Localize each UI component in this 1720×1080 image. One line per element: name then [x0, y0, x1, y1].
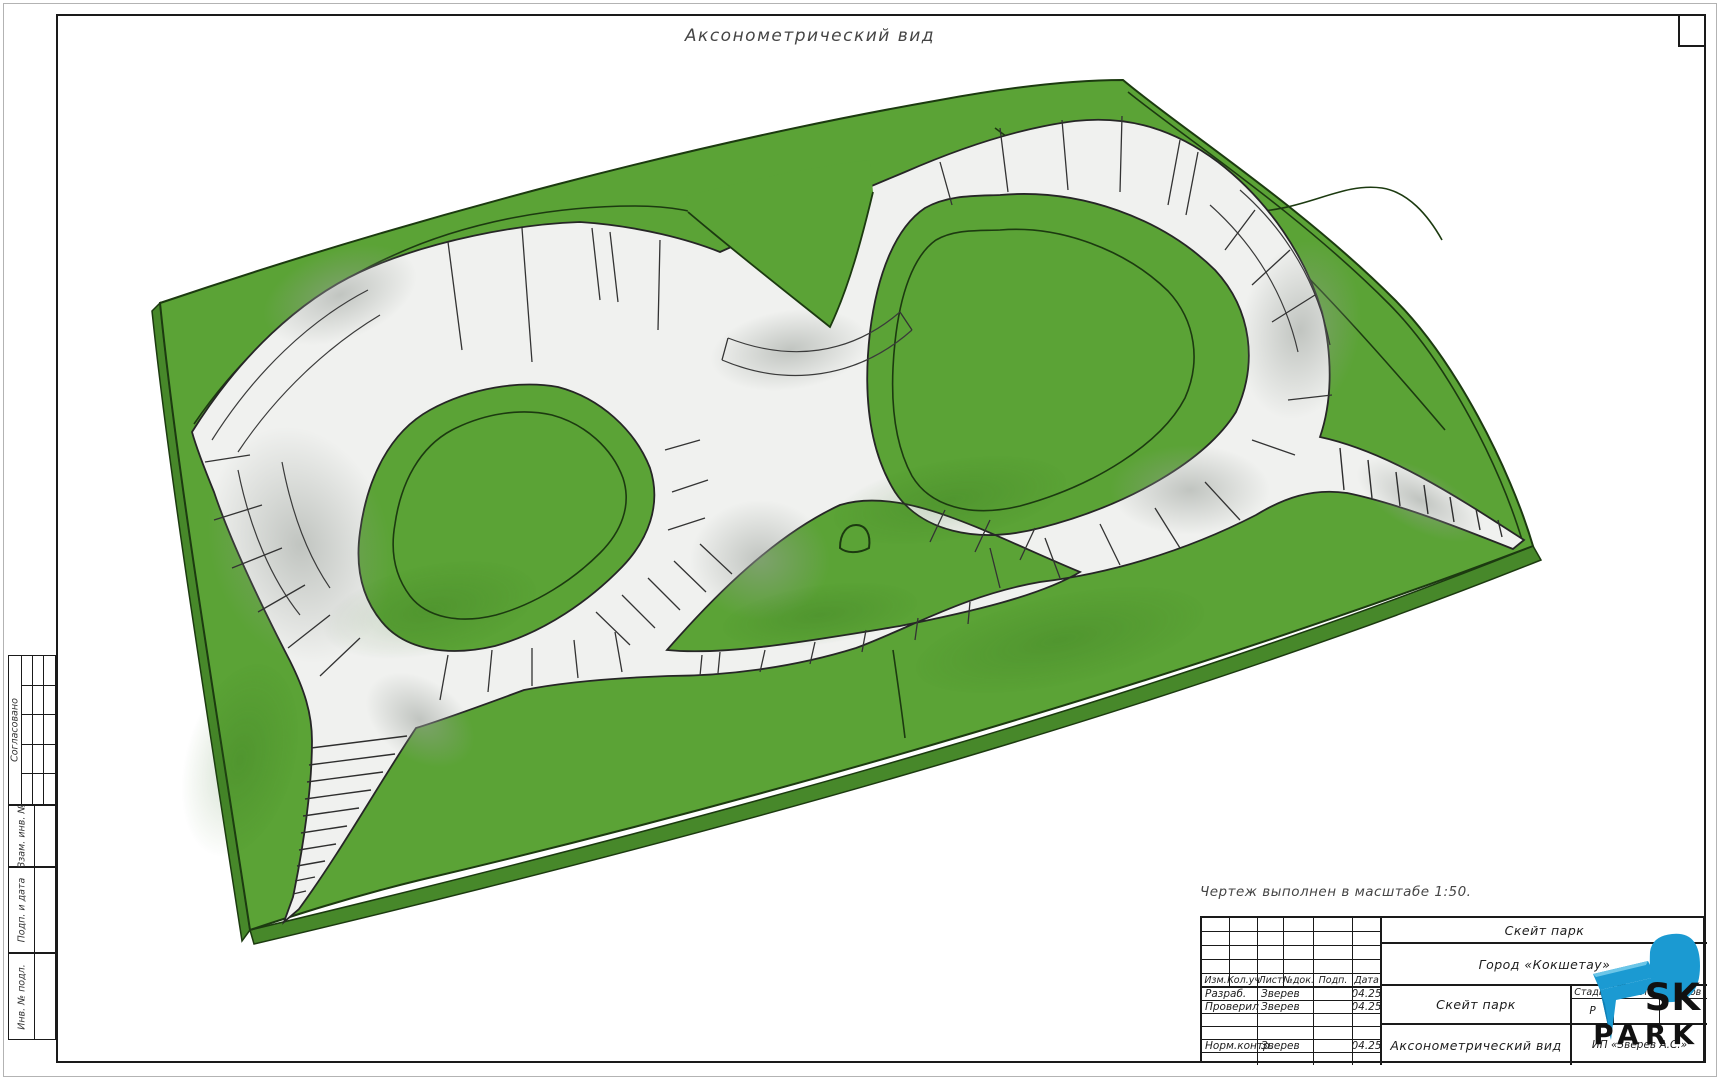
logo-text-sk: SK	[1645, 976, 1702, 1019]
sig-date: 04.25	[1353, 988, 1382, 1001]
sig-role	[1202, 1053, 1258, 1065]
col-izm: Изм.	[1202, 974, 1230, 988]
sig-role: Разраб.	[1202, 988, 1258, 1001]
sig-name	[1258, 1014, 1314, 1027]
sig-role	[1202, 1014, 1258, 1027]
object-name: Скейт парк	[1382, 986, 1572, 1025]
sig-date	[1353, 1027, 1382, 1040]
col-podp: Подп.	[1314, 974, 1353, 988]
sig-sign	[1314, 1027, 1353, 1040]
sig-role: Проверил	[1202, 1001, 1258, 1014]
sig-sign	[1314, 1001, 1353, 1014]
sig-role: Норм.контр.	[1202, 1040, 1258, 1053]
logo-text-park: PARK	[1593, 1018, 1700, 1051]
sk-park-logo: SK PARK	[1548, 872, 1718, 1072]
sheet-title: Аксонометрический вид	[1382, 1025, 1572, 1065]
sig-name: Зверев	[1258, 988, 1314, 1001]
sig-sign	[1314, 1053, 1353, 1065]
sig-name: Зверев	[1258, 1040, 1314, 1053]
sig-date: 04.25	[1353, 1040, 1382, 1053]
col-ndok: №док.	[1284, 974, 1314, 988]
sig-date	[1353, 1014, 1382, 1027]
col-kol: Кол.уч	[1230, 974, 1258, 988]
sig-date	[1353, 1053, 1382, 1065]
sig-sign	[1314, 988, 1353, 1001]
sig-name	[1258, 1027, 1314, 1040]
sig-date: 04.25	[1353, 1001, 1382, 1014]
col-list: Лист	[1258, 974, 1284, 988]
sig-role	[1202, 1027, 1258, 1040]
drawing-sheet: Аксонометрический вид Чертеж выполнен в …	[0, 0, 1720, 1080]
sig-name	[1258, 1053, 1314, 1065]
sig-sign	[1314, 1014, 1353, 1027]
col-data: Дата	[1353, 974, 1382, 988]
sig-name: Зверев	[1258, 1001, 1314, 1014]
sig-sign	[1314, 1040, 1353, 1053]
